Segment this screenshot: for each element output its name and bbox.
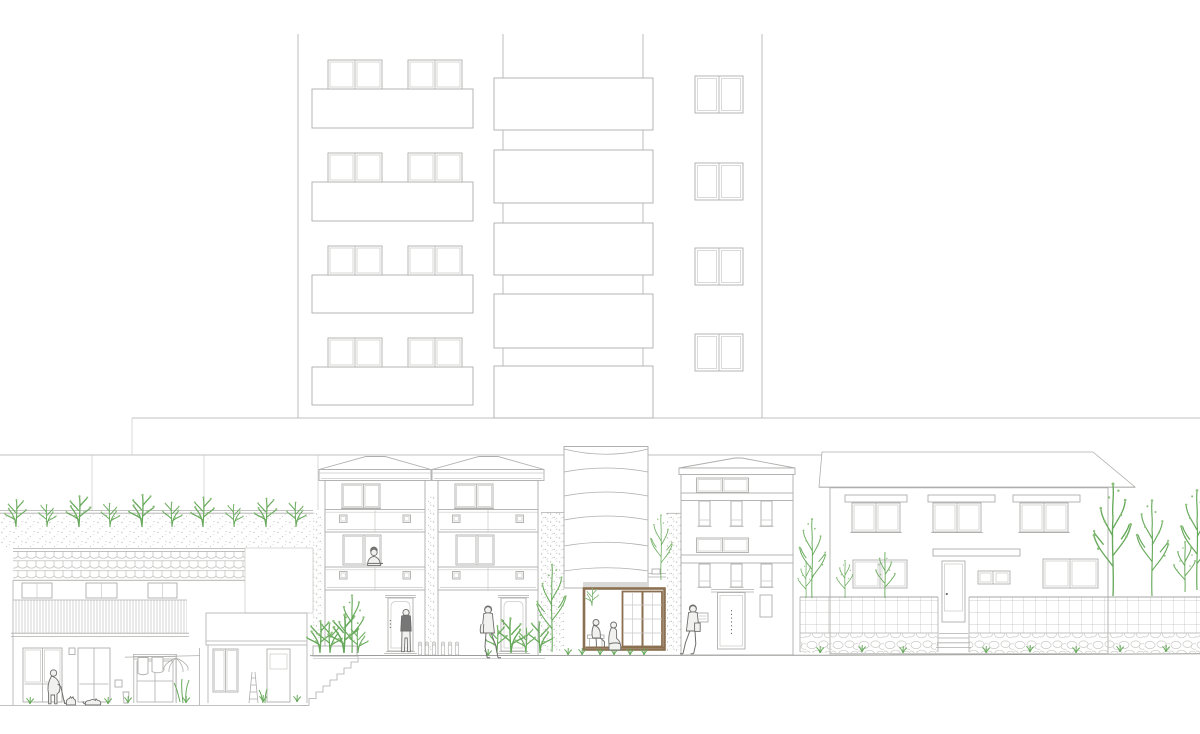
right-side-wall-texture	[666, 513, 681, 652]
core-panel	[494, 223, 653, 275]
balcony-window-pair	[408, 153, 462, 182]
balcony-window-pair	[328, 153, 382, 182]
balcony-slab	[312, 182, 473, 221]
tile-roof-band	[13, 552, 245, 581]
small-vent	[115, 680, 122, 687]
street-block-fence	[800, 597, 1200, 653]
door-knob	[946, 593, 948, 595]
balcony-slab	[312, 89, 473, 128]
grass-tuft	[564, 648, 571, 655]
core-panel	[494, 78, 653, 130]
core-panel	[494, 294, 653, 348]
narrow-windows-row-1	[698, 501, 774, 526]
second-floor-windows	[845, 495, 1080, 533]
gas-meter	[425, 642, 428, 655]
townhouse-unit	[319, 457, 431, 656]
gas-meter	[448, 642, 451, 655]
grass-tuft	[293, 695, 300, 702]
tower-window	[695, 334, 743, 371]
tower-window	[695, 76, 743, 113]
side-window	[760, 595, 772, 617]
tile-roof-ridge	[13, 549, 245, 552]
curved-facade-building	[564, 447, 681, 653]
apartment-tower-elevation	[298, 34, 762, 418]
grass-tuft	[182, 696, 189, 703]
elevation-drawing-canvas	[0, 0, 1200, 734]
entrance-canopy	[933, 549, 1020, 556]
balcony-window-pair	[408, 60, 462, 89]
tower-window	[695, 248, 743, 285]
core-panel	[494, 366, 653, 418]
gas-meter	[432, 642, 435, 655]
core-panel	[494, 150, 653, 203]
gas-meter	[441, 642, 444, 655]
towel-1	[138, 658, 148, 675]
balcony-slab	[312, 367, 473, 405]
storefront-recess-shadow	[583, 582, 648, 588]
lattice-wall	[245, 548, 313, 613]
tree	[1180, 489, 1200, 590]
roof-vent-box	[652, 569, 660, 574]
towel-2	[152, 657, 163, 673]
corrugated-siding	[13, 600, 187, 633]
hedge-top-lines	[0, 511, 313, 514]
left-old-house-compound	[0, 494, 313, 706]
narrow-windows-row-2	[698, 564, 774, 587]
balcony-window-pair	[328, 246, 382, 275]
tower-window	[695, 163, 743, 200]
hip-roof	[819, 452, 1135, 487]
balcony-window-pair	[328, 60, 382, 89]
rotary-clothes-dryer	[164, 658, 188, 702]
balcony-slab	[312, 275, 473, 313]
cat-sit	[64, 697, 75, 705]
small-house-awning	[206, 613, 307, 645]
balcony-window-pair	[408, 338, 462, 367]
balcony-window-pair	[328, 338, 382, 367]
balcony-window-pair	[408, 246, 462, 275]
porch-lamp	[69, 648, 75, 655]
street-elevation-svg	[0, 0, 1200, 734]
tree	[1136, 499, 1170, 596]
street-stairs	[300, 656, 358, 706]
step-ladder	[249, 672, 258, 703]
gas-meter	[455, 642, 458, 655]
gas-meter	[418, 642, 421, 655]
mailbox	[697, 613, 708, 622]
